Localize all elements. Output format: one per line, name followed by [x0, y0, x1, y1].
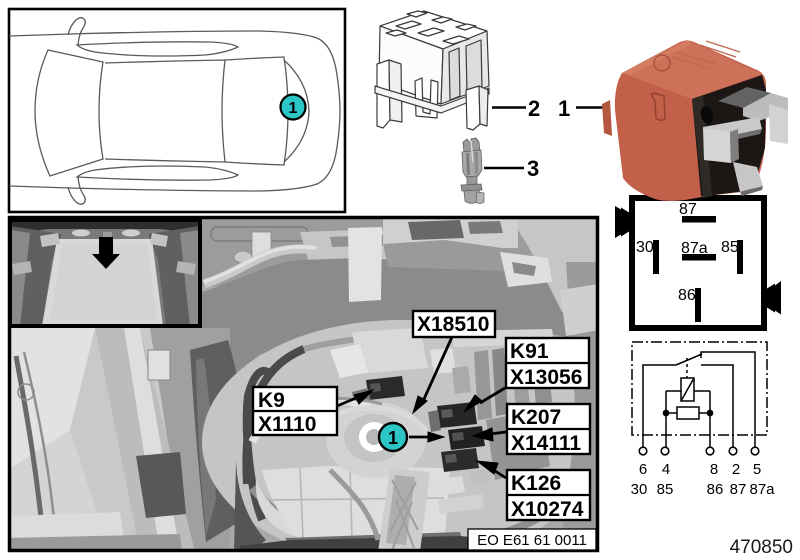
svg-text:87: 87 — [679, 201, 697, 218]
svg-text:3: 3 — [527, 156, 539, 181]
svg-text:87a: 87a — [749, 481, 775, 498]
svg-text:X18510: X18510 — [417, 313, 489, 336]
svg-text:X13056: X13056 — [510, 366, 582, 389]
svg-text:EO E61 61 0011: EO E61 61 0011 — [477, 532, 587, 549]
svg-text:8: 8 — [710, 461, 718, 478]
svg-text:86: 86 — [678, 287, 696, 304]
svg-text:K207: K207 — [511, 406, 561, 429]
svg-text:30: 30 — [636, 239, 654, 256]
svg-text:87: 87 — [730, 481, 747, 498]
svg-text:86: 86 — [707, 481, 724, 498]
svg-text:2: 2 — [528, 96, 540, 121]
svg-text:K91: K91 — [510, 340, 549, 363]
svg-text:K126: K126 — [511, 472, 561, 495]
svg-text:X10274: X10274 — [511, 498, 584, 521]
svg-text:X1110: X1110 — [258, 413, 316, 436]
svg-text:85: 85 — [721, 239, 739, 256]
svg-text:2: 2 — [732, 461, 740, 478]
svg-text:4: 4 — [662, 461, 670, 478]
svg-text:1: 1 — [558, 96, 570, 121]
svg-text:30: 30 — [631, 481, 648, 498]
svg-text:X14111: X14111 — [511, 432, 581, 455]
svg-text:5: 5 — [753, 461, 761, 478]
svg-text:470850: 470850 — [730, 537, 793, 558]
svg-text:1: 1 — [388, 428, 398, 448]
svg-text:6: 6 — [639, 461, 647, 478]
svg-text:1: 1 — [289, 100, 298, 117]
svg-text:85: 85 — [657, 481, 674, 498]
svg-text:K9: K9 — [258, 389, 285, 412]
